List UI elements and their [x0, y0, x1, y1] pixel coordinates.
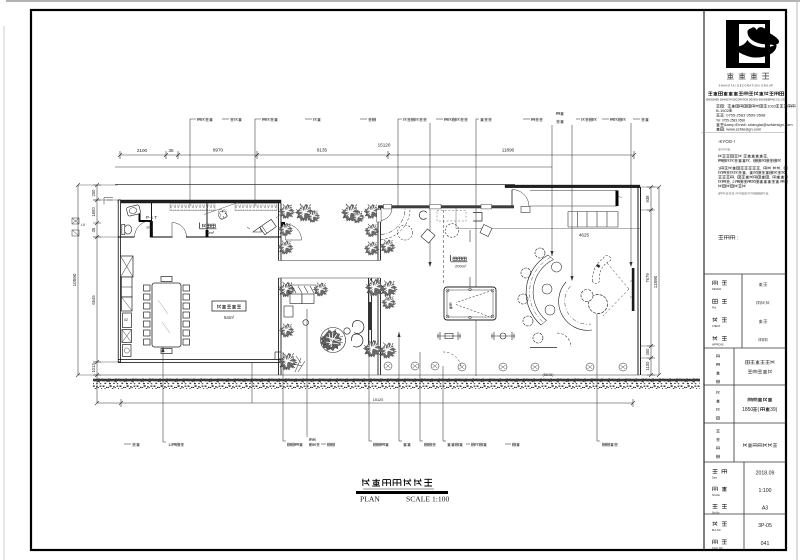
svg-text:LX: LX [81, 223, 86, 227]
svg-text:02: 02 [124, 318, 128, 322]
svg-text:450: 450 [645, 348, 650, 356]
svg-text:1013: 1013 [91, 363, 96, 373]
svg-text:11890: 11890 [502, 148, 515, 153]
svg-text:15120: 15120 [373, 398, 384, 402]
svg-text:S.EQ. NO: S.EQ. NO [712, 547, 723, 550]
svg-text:,: , [767, 154, 768, 159]
svg-text:,: , [785, 170, 786, 175]
svg-text:6545: 6545 [91, 295, 96, 305]
svg-text:1:100: 1:100 [759, 488, 772, 494]
svg-text:15120: 15120 [378, 143, 391, 148]
svg-text:8135: 8135 [317, 148, 328, 153]
svg-text:11890: 11890 [653, 275, 658, 288]
svg-text:1m²: 1m² [146, 226, 153, 230]
svg-text:200m²: 200m² [455, 264, 467, 269]
svg-text:35: 35 [91, 227, 96, 232]
svg-text:Plot: Plot [712, 307, 716, 310]
svg-text:(5646): (5646) [543, 373, 555, 377]
svg-text:1002: 1002 [767, 104, 777, 109]
svg-text:,: , [769, 175, 770, 180]
svg-text:P-1 T: P-1 T [146, 215, 157, 220]
svg-text:,: , [760, 166, 761, 171]
svg-text:,: , [746, 170, 747, 175]
svg-text:A3: A3 [762, 506, 768, 512]
svg-text:APPROVE: APPROVE [712, 344, 724, 347]
svg-text:CHECK: CHECK [712, 325, 721, 328]
svg-text:35: 35 [168, 148, 174, 153]
svg-text:DESIGN: DESIGN [712, 288, 721, 291]
svg-text:: 0755-2583 9599 9598: : 0755-2583 9599 9598 [724, 113, 766, 118]
svg-text:-KYOG-!: -KYOG-! [718, 139, 735, 144]
svg-text:041: 041 [761, 541, 770, 547]
svg-text:250: 250 [91, 189, 96, 197]
svg-text:1850: 1850 [742, 407, 753, 413]
svg-text:2018.09: 2018.09 [756, 471, 775, 477]
svg-text:1100: 1100 [645, 361, 650, 371]
svg-text:10m²: 10m² [205, 230, 215, 235]
svg-text:938: 938 [645, 195, 650, 203]
svg-text:2100: 2100 [137, 148, 148, 153]
svg-text:SCALE: SCALE [712, 494, 720, 497]
svg-text:SHANGTAI DECORATION GROUP: SHANGTAI DECORATION GROUP [719, 84, 774, 88]
svg-text:,: , [750, 158, 751, 163]
svg-text:,: , [780, 166, 781, 171]
svg-text:, 2: , 2 [730, 179, 735, 184]
svg-text:39): 39) [770, 407, 778, 413]
svg-text:3P-05: 3P-05 [758, 523, 772, 529]
svg-text:8970: 8970 [213, 148, 224, 153]
svg-text:54m²: 54m² [224, 315, 235, 320]
svg-text:4625: 4625 [579, 233, 590, 238]
svg-text:BLA NO: BLA NO [712, 529, 721, 532]
svg-text:PLAN: PLAN [360, 495, 380, 504]
svg-text:10590: 10590 [72, 273, 77, 286]
svg-text:1800: 1800 [91, 207, 96, 217]
svg-text:7679: 7679 [645, 273, 650, 283]
svg-text:SHENZHEN SHANGTAI DECORATION D: SHENZHEN SHANGTAI DECORATION DESIGN ENGI… [706, 99, 786, 102]
svg-text:: www.sztdesign.com: : www.sztdesign.com [724, 127, 762, 132]
svg-text:Date: Date [712, 477, 718, 480]
svg-text:SCALE 1:100: SCALE 1:100 [406, 495, 449, 504]
